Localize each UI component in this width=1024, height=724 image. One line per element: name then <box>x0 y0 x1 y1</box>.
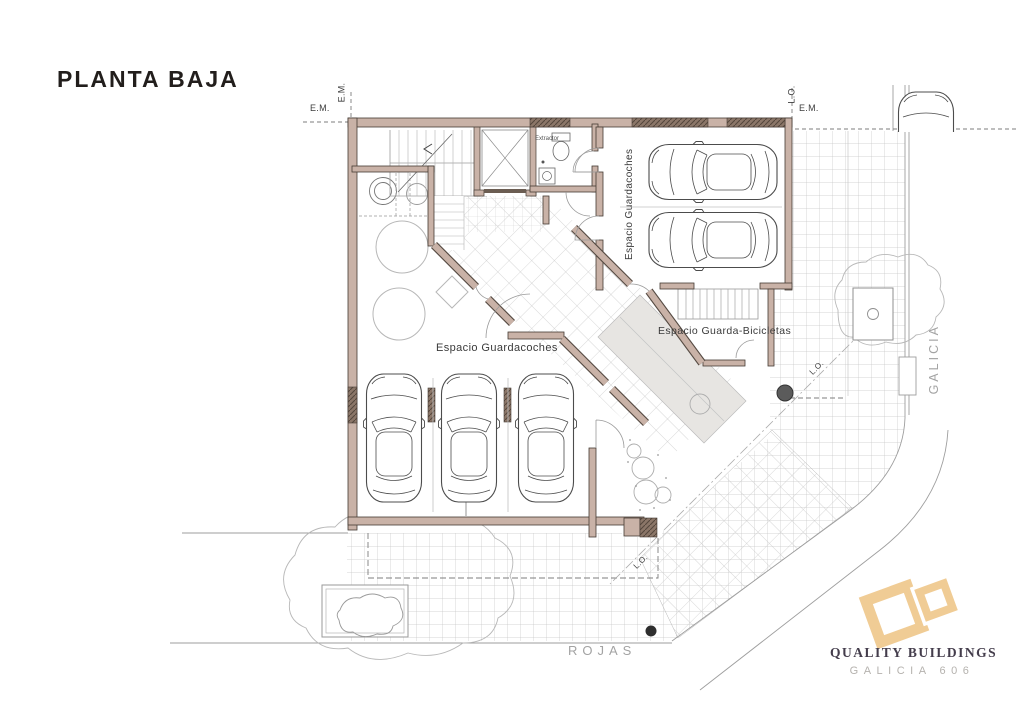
extractor-label: Extractor <box>535 136 559 142</box>
bike-storage-label: Espacio Guarda-Bicicletas <box>658 326 791 337</box>
logo-project-name: GALICIA 606 <box>830 666 994 677</box>
em-label-right-horizontal: E.M. <box>799 104 819 113</box>
garage-bottom-label: Espacio Guardacoches <box>436 343 558 354</box>
elevator-sill <box>484 189 526 193</box>
elevator <box>474 124 536 196</box>
em-label-left-horizontal: E.M. <box>310 104 330 113</box>
garage-right-label: Espacio Guardacoches <box>625 150 635 260</box>
floor-plan-sheet: PLANTA BAJA E.M. E.M. L.O. E.M. L.O. L.O… <box>0 0 1024 724</box>
street-tree-dot <box>646 626 657 637</box>
street-name-rojas: ROJAS <box>568 644 636 657</box>
page-title: PLANTA BAJA <box>57 68 239 91</box>
street-stair-strip <box>678 289 758 319</box>
street-tree-dot <box>777 385 793 401</box>
lo-label-right-vertical: L.O. <box>788 80 797 110</box>
street-name-galicia: GALICIA <box>928 319 941 399</box>
quality-buildings-logo-mark <box>866 583 953 642</box>
logo-company-name: QUALITY BUILDINGS <box>830 646 994 660</box>
em-label-left-vertical: E.M. <box>338 78 347 108</box>
floor-plan-drawing <box>0 0 1024 724</box>
